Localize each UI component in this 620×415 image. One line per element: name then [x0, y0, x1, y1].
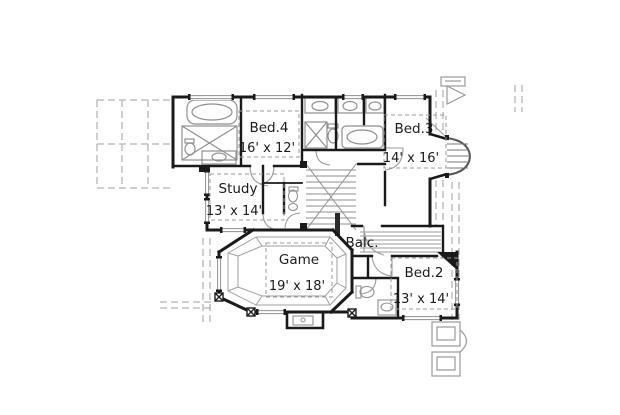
toilet-bowl [289, 190, 298, 202]
bed2-bath-fixtures [356, 286, 396, 315]
window [342, 94, 364, 100]
room-label-balcony: Balc. [346, 235, 379, 251]
door-study [263, 213, 279, 230]
room-dims-game: 19' x 18' [269, 279, 325, 294]
door-study-bath [285, 213, 300, 228]
room-name-game: Game [279, 252, 319, 268]
study-bath-fixtures [289, 187, 299, 211]
toilet-tank [185, 139, 194, 143]
jack-and-jill-bath-fixtures [305, 98, 384, 148]
room-name-bed2: Bed.2 [404, 265, 443, 281]
window [188, 94, 234, 100]
window [216, 256, 222, 292]
roof-grid-garage-below [97, 100, 173, 188]
window [402, 315, 442, 321]
post [215, 293, 223, 301]
post [348, 309, 356, 317]
door-jackjill-west [316, 150, 330, 165]
window [256, 309, 286, 315]
window-seat-niche [287, 313, 323, 328]
room-name-bed3: Bed.3 [394, 121, 433, 137]
floor-plan-drawing: Bed.4 16' x 12' Study 13' x 14' Bed.3 14… [0, 0, 620, 415]
chimney-top-right [441, 77, 465, 104]
roof-edge-right [436, 85, 522, 320]
room-name-balcony: Balc. [346, 235, 379, 251]
master-bath-fixtures [182, 100, 237, 164]
room-label-game: Game 19' x 18' [266, 243, 332, 297]
door-bed2 [372, 256, 392, 276]
room-dims-bed2: 13' x 14' [393, 292, 449, 307]
window [253, 94, 295, 100]
roof-edge-left [160, 238, 215, 322]
post [247, 308, 255, 316]
floor-plan-canvas: Bed.4 16' x 12' Study 13' x 14' Bed.3 14… [0, 0, 620, 415]
wall-stub [199, 166, 210, 172]
sink [289, 204, 298, 211]
chimney-bottom-right [432, 322, 467, 376]
room-name-study: Study [219, 181, 258, 197]
room-dims-bed3: 14' x 16' [383, 151, 439, 166]
room-dims-study: 13' x 14' [206, 204, 262, 219]
staircase [300, 161, 356, 236]
room-label-bed3: Bed.3 14' x 16' [383, 115, 446, 168]
window [204, 170, 210, 196]
room-dims-bed4: 16' x 12' [239, 141, 295, 156]
window [220, 227, 246, 233]
sink [312, 102, 328, 111]
room-label-study: Study 13' x 14' [206, 174, 284, 220]
room-label-bed2: Bed.2 13' x 14' [391, 258, 457, 309]
room-labels: Bed.4 16' x 12' Study 13' x 14' Bed.3 14… [206, 111, 457, 309]
room-name-bed4: Bed.4 [249, 120, 288, 136]
sink [369, 102, 381, 110]
window [394, 94, 426, 100]
toilet-bowl [185, 143, 195, 155]
game-room-tray-ceiling [228, 237, 346, 305]
sink [343, 102, 357, 111]
room-label-bed4: Bed.4 16' x 12' [239, 111, 299, 157]
